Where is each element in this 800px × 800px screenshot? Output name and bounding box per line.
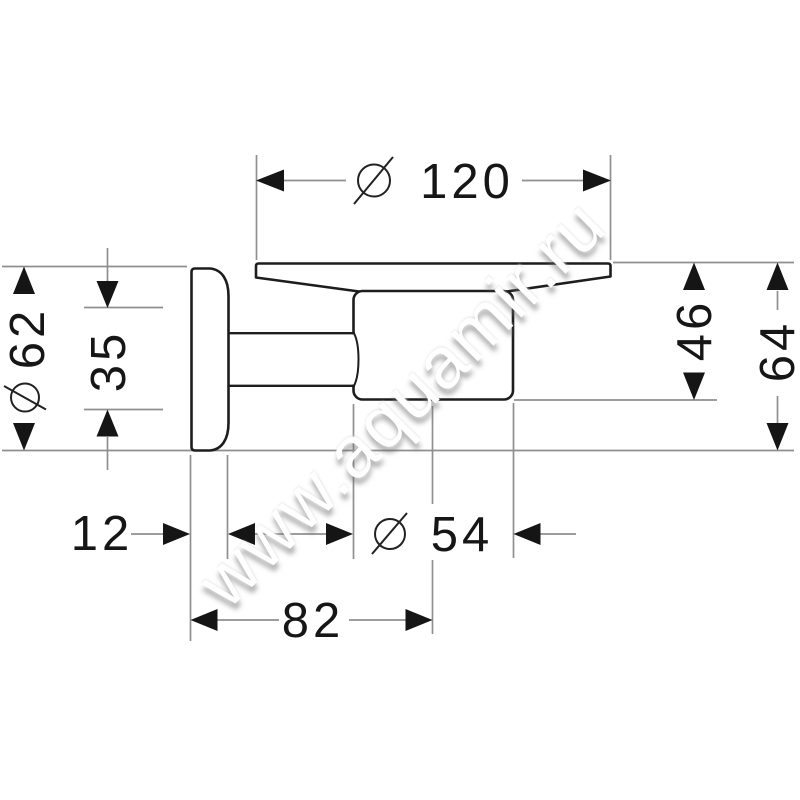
arrow-64-top <box>767 263 789 291</box>
dimension-labels: 120 62 35 46 64 12 54 82 <box>1 155 800 648</box>
soap-dish-plate <box>256 264 611 292</box>
technical-drawing-canvas: 120 62 35 46 64 12 54 82 www.aquamir.ru <box>0 0 800 800</box>
arrow-35-top <box>97 281 119 308</box>
fixture-outline <box>192 264 611 451</box>
arrow-54-left-tip <box>326 523 353 545</box>
arrow-35-bottom <box>97 410 119 437</box>
holder-cup <box>354 291 514 400</box>
dim-label-rosette-diameter: 62 <box>1 307 55 370</box>
dim-label-cup-diameter: 54 <box>431 508 494 562</box>
soap-dish-drawing: 120 62 35 46 64 12 54 82 <box>0 0 800 800</box>
arrow-62-top <box>13 267 35 295</box>
arrow-64-bottom <box>767 423 789 451</box>
dim-label-drop-to-cup: 46 <box>668 299 722 362</box>
dim-label-projection: 82 <box>282 594 345 648</box>
arrow-12-right <box>163 523 190 545</box>
arm-mask <box>231 335 356 385</box>
arrow-12-left <box>228 523 255 545</box>
diameter-symbol-54 <box>372 513 407 554</box>
dim-label-drop-to-rosette: 64 <box>751 320 800 383</box>
arrow-62-bottom <box>13 423 35 451</box>
arrow-54-right-tip <box>514 523 541 545</box>
diameter-symbol-120 <box>354 157 393 204</box>
arrow-46-top <box>683 263 705 291</box>
arrow-46-bottom <box>683 373 705 401</box>
arrow-82-right <box>406 609 433 631</box>
diameter-symbol-62 <box>4 384 46 412</box>
arrow-82-left <box>191 609 218 631</box>
dim-label-rosette-offset: 35 <box>82 330 136 393</box>
dim-label-dish-diameter: 120 <box>420 155 514 209</box>
arrow-120-left <box>256 170 284 192</box>
wall-rosette-plate <box>192 269 229 451</box>
dim-label-rosette-thickness: 12 <box>71 507 134 561</box>
arrow-120-right <box>583 170 611 192</box>
